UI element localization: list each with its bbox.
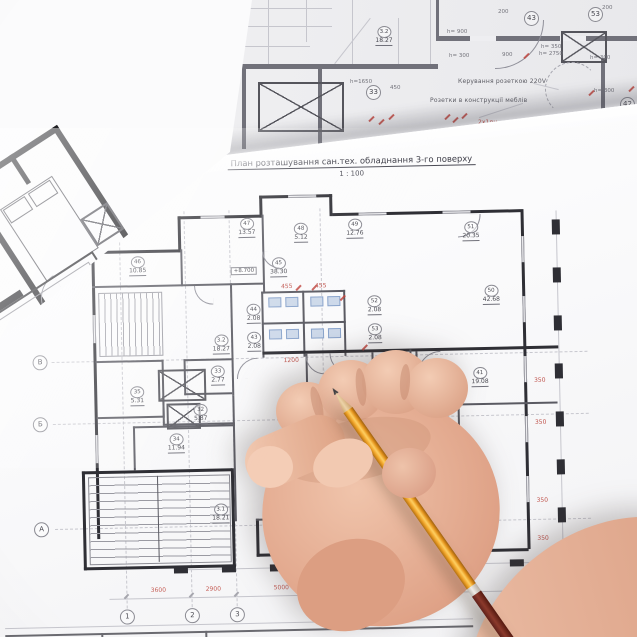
staircase [88,474,232,565]
room-label: 5042.68 [482,285,500,305]
room-label: 4538.30 [270,257,288,277]
room-circle: 33 [366,85,381,100]
door-arc [495,20,544,69]
room-label: 4610.85 [129,256,147,276]
dim-bottom: 2900 [206,586,221,593]
room-label: 332.77 [211,365,225,385]
staircase-upper [98,292,163,357]
room-label: 522.08 [367,295,381,315]
room-label: 3411.94 [167,433,185,453]
dim-inner: 455 [315,282,327,289]
elevation-mark: +8.700 [231,267,258,276]
elevation-mark: +8.700 [434,373,461,382]
room-circle: 43 [524,11,539,26]
dim-right: 350 [537,535,549,542]
grid-axis-a: А [34,522,49,537]
room-label: 485.12 [294,223,308,243]
room-circle: 53 [588,7,603,22]
grid-axis-b: Б [33,417,48,432]
room-label: 3.118.21 [212,503,230,523]
grid-axis-v: В [32,355,47,370]
room-label: 3184.27 [281,452,299,472]
grid-axis-3: 3 [230,607,245,622]
dim-bottom: 5000 [367,582,382,589]
elevator-shaft [158,369,207,402]
dim-right: 350 [534,377,546,384]
room-label: 355.31 [130,386,144,406]
room-label: 548.29 [391,367,405,387]
grid-axis-1: 1 [120,609,135,624]
room-label: 3620.39 [281,532,299,552]
room-label: 442.08 [246,304,260,324]
grid-axis-2: 2 [185,608,200,623]
d im-bottom: 3600 [151,587,166,594]
dim-bottom: 5000 [274,584,289,591]
dim-right: 350 [535,419,547,426]
room-label: 4119.08 [471,367,489,387]
room-label: 532.08 [368,323,382,343]
room-label: 4912.76 [346,218,364,238]
room-label: 325.87 [193,404,207,424]
dim-right: 350 [536,497,548,504]
note-socket-control: Керування розеткою 220V [458,78,546,85]
elevation-mark: +8.700 [274,472,301,481]
room-label: 3716.57 [347,531,365,551]
dim-inner: 1200 [284,357,299,364]
room-label: 3.2 18.27 [375,26,392,46]
grid-axis-4: 4 [321,605,336,620]
room-label: 3.218.27 [212,334,230,354]
room-label: 4713.57 [238,218,256,238]
room-label: 432.08 [247,332,261,352]
room-label: 5120.35 [462,221,480,241]
dim-inner: 455 [281,283,293,290]
photo-canvas: Керування розеткою 220V Розетки в констр… [0,0,637,637]
